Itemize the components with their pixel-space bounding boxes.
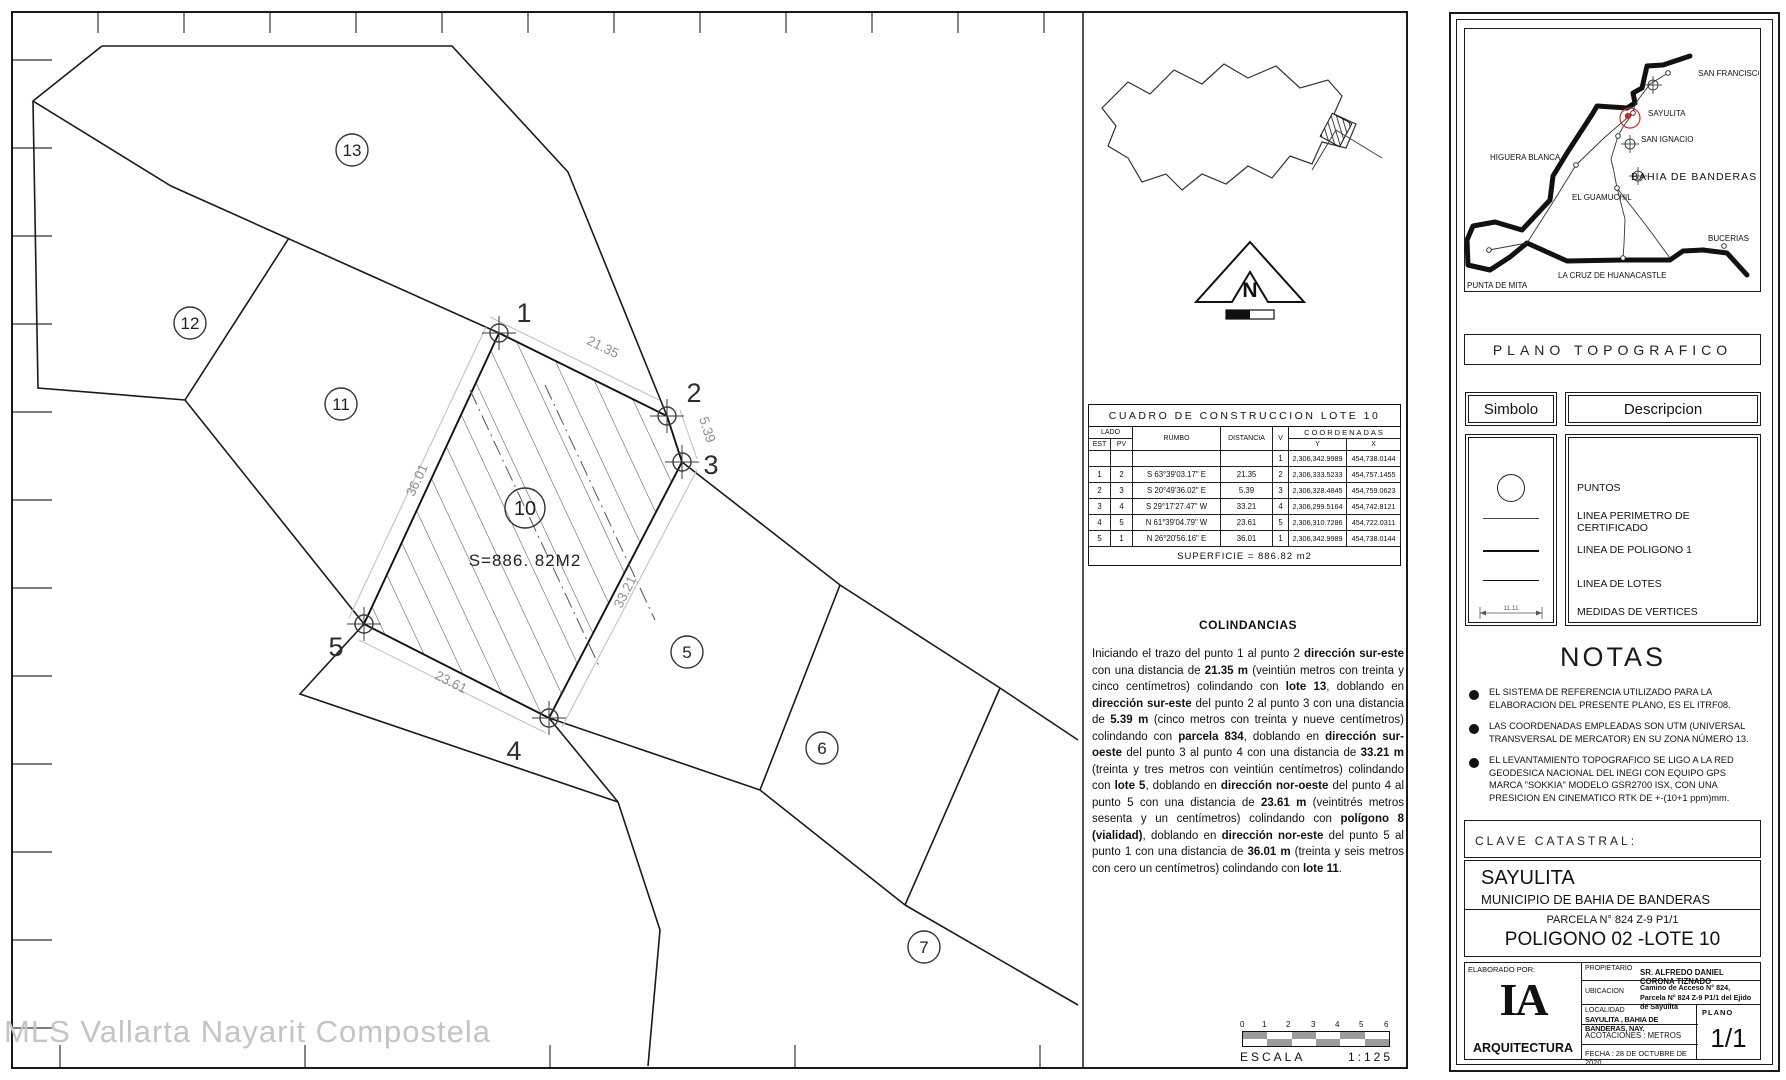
town-san-francisco: SAN FRANCISCO (1698, 69, 1759, 78)
locality-name: SAYULITA (1481, 867, 1760, 890)
ubicacion-row: UBICACION Camino de Acceso N° 824, Parce… (1582, 981, 1760, 1005)
vertex-measure-icon: 11.11 (1469, 602, 1553, 620)
vertex-label-4: 4 (506, 736, 521, 766)
legend-item-medidas: MEDIDAS DE VERTICES (1577, 606, 1737, 618)
town-la-cruz: LA CRUZ DE HUANACASTLE (1558, 271, 1666, 280)
ubicacion-line1: Camino de Acceso N° 824, (1640, 983, 1730, 992)
parcela-number: PARCELA N° 824 Z-9 P1/1 (1465, 914, 1760, 926)
north-label: N (1242, 279, 1257, 302)
plano-label: PLANO (1702, 1008, 1733, 1017)
poligono-line-icon (1469, 550, 1553, 552)
legend-descripcion-header: Descripcion (1565, 392, 1761, 426)
table-row: 23S 20°49'36.02" E5.3932,306,328.4845454… (1089, 483, 1401, 499)
nota-item: EL LEVANTAMIENTO TOPOGRAFICO SE LIGO A L… (1467, 754, 1759, 804)
lot-label-6: 6 (817, 739, 826, 758)
vertex-label-2: 2 (686, 378, 701, 408)
lot-label-11: 11 (332, 395, 350, 414)
lot-label-12: 12 (181, 314, 200, 333)
propietario-row: PROPIETARIO SR. ALFREDO DANIEL CORONA TI… (1582, 963, 1760, 981)
coastline (1467, 56, 1747, 275)
municipio-name: MUNICIPIO DE BAHIA DE BANDERAS (1481, 892, 1760, 907)
legend-item-perimetro: LINEA PERIMETRO DE CERTIFICADO (1577, 510, 1707, 534)
town-bucerias: BUCERIAS (1708, 234, 1749, 243)
scale-numbers: 0 1 2 3 4 5 6 (1240, 1020, 1392, 1029)
lot-label-7: 7 (919, 938, 928, 957)
localidad-row: LOCALIDAD SAYULITA , BAHIA DE BANDERAS, … (1582, 1005, 1698, 1025)
right-panel: SAN FRANCISCO SAYULITA SAN IGNACIO HIGUE… (1449, 12, 1780, 1072)
table-row: 51N 26°20'56.16" E36.0112,306,342.998945… (1089, 531, 1401, 547)
town-higuera-blanca: HIGUERA BLANCA (1490, 153, 1561, 162)
lot-label-10: 10 (514, 498, 536, 520)
clave-catastral-box: CLAVE CATASTRAL: (1464, 820, 1761, 858)
legend-symbol-column: 11.11 (1465, 434, 1557, 626)
point-symbol-icon (1469, 474, 1553, 502)
clave-catastral-label: CLAVE CATASTRAL: (1465, 821, 1760, 848)
perimeter-line-icon (1469, 518, 1553, 519)
construction-table: CUADRO DE CONSTRUCCION LOTE 10 LADO RUMB… (1088, 404, 1401, 566)
lot-label-13: 13 (343, 141, 362, 160)
nota-item: EL SISTEMA DE REFERENCIA UTILIZADO PARA … (1467, 686, 1759, 711)
vertex-label-5: 5 (328, 632, 343, 662)
firm-name: ARQUITECTURA (1465, 1041, 1581, 1055)
superficie-row: SUPERFICIE = 886.82 m2 (1089, 547, 1401, 566)
location-map: SAN FRANCISCO SAYULITA SAN IGNACIO HIGUE… (1465, 29, 1759, 290)
firm-logo: IA (1465, 973, 1581, 1026)
colindancias-title: COLINDANCIAS (1092, 618, 1404, 632)
title-block: ELABORADO POR: IA ARQUITECTURA PROPIETAR… (1464, 962, 1761, 1060)
lot-label-5: 5 (682, 643, 691, 662)
location-block: SAYULITA MUNICIPIO DE BAHIA DE BANDERAS … (1464, 860, 1761, 957)
fecha-value: FECHA : 28 DE OCTUBRE DE 2020 (1585, 1049, 1698, 1067)
lotes-line-icon (1469, 580, 1553, 581)
table-row: 12,306,342.9989454,738.0144 (1089, 451, 1401, 467)
plano-value: 1/1 (1697, 1023, 1760, 1054)
acotaciones-value: ACOTACIONES : METROS (1585, 1031, 1681, 1040)
plan-page: 1 2 3 4 5 13 12 11 10 5 6 7 S=886. 82M2 … (0, 0, 1786, 1080)
table-row: 34S 29°17'27.47" W33.2142,306,299.516445… (1089, 499, 1401, 515)
town-punta-de-mita: PUNTA DE MITA (1467, 281, 1528, 290)
legend-description-column: PUNTOS LINEA PERIMETRO DE CERTIFICADO LI… (1565, 434, 1761, 626)
legend-item-puntos: PUNTOS (1577, 482, 1737, 494)
table-row: 12S 63°39'03.17" E21.3522,306,333.523345… (1089, 467, 1401, 483)
legend-item-poligono: LINEA DE POLIGONO 1 (1577, 544, 1737, 556)
scale-bar-blocks (1242, 1031, 1390, 1047)
plano-number-cell: PLANO 1/1 (1696, 1005, 1760, 1059)
vertex-label-3: 3 (703, 450, 718, 480)
watermark: MLS Vallarta Nayarit Compostela (4, 1014, 491, 1050)
sayulita-highlight (1620, 108, 1640, 128)
legend-simbolo-header: Simbolo (1465, 392, 1557, 426)
construction-table-title: CUADRO DE CONSTRUCCION LOTE 10 (1089, 405, 1401, 427)
escala-label: ESCALA (1240, 1050, 1305, 1064)
fecha-row: FECHA : 28 DE OCTUBRE DE 2020 (1582, 1045, 1698, 1061)
survey-crosses (1621, 76, 1662, 185)
acotaciones-row: ACOTACIONES : METROS (1582, 1025, 1698, 1045)
legend-item-lotes: LINEA DE LOTES (1577, 578, 1737, 590)
town-el-guamuchil: EL GUAMUCHIL (1572, 193, 1632, 202)
area-label: S=886. 82M2 (469, 551, 582, 570)
colindancias-section: COLINDANCIAS Iniciando el trazo del punt… (1092, 618, 1404, 877)
svg-text:11.11: 11.11 (1503, 605, 1519, 612)
notas-list: EL SISTEMA DE REFERENCIA UTILIZADO PARA … (1467, 686, 1759, 813)
firm-logo-cell: ELABORADO POR: IA ARQUITECTURA (1465, 963, 1582, 1059)
escala-ratio: 1:125 (1348, 1050, 1393, 1064)
scale-bar: 0 1 2 3 4 5 6 ESCALA 1:125 (1240, 1020, 1410, 1068)
colindancias-text: Iniciando el trazo del punto 1 al punto … (1092, 646, 1404, 877)
town-bahia-de-banderas: BAHIA DE BANDERAS (1631, 171, 1757, 183)
notas-title: NOTAS (1471, 642, 1755, 673)
nota-item: LAS COORDENADAS EMPLEADAS SON UTM (UNIVE… (1467, 720, 1759, 745)
town-san-ignacio: SAN IGNACIO (1641, 135, 1693, 144)
vertex-label-1: 1 (516, 298, 531, 328)
poligono-lote: POLIGONO 02 -LOTE 10 (1465, 929, 1760, 951)
location-map-box: SAN FRANCISCO SAYULITA SAN IGNACIO HIGUE… (1464, 28, 1761, 292)
plano-topografico-title: PLANO TOPOGRAFICO (1464, 334, 1761, 365)
table-row: 45N 61°39'04.79" W23.6152,306,310.728645… (1089, 515, 1401, 531)
town-sayulita: SAYULITA (1648, 109, 1686, 118)
